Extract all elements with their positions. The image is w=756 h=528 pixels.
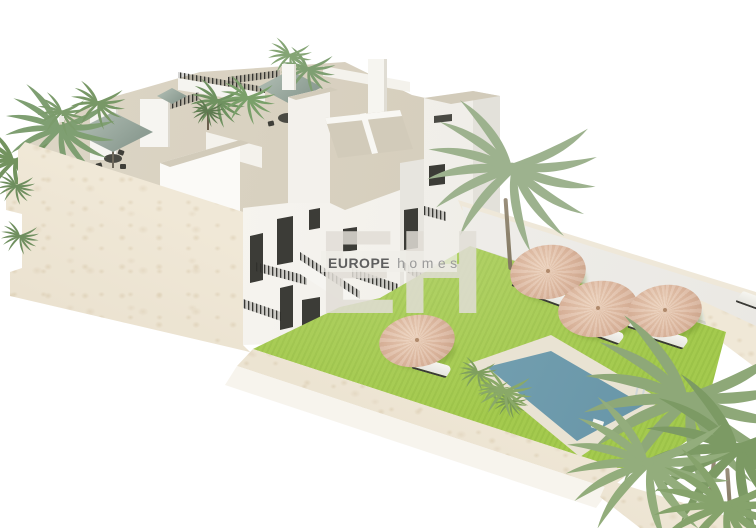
patio-chair bbox=[120, 164, 126, 169]
chimney bbox=[282, 64, 296, 90]
render-canvas: EH EUROPE homes bbox=[0, 0, 756, 528]
palm-tree bbox=[647, 434, 756, 528]
umbrella-tip bbox=[546, 269, 550, 273]
planter-plant bbox=[0, 217, 41, 243]
chimney bbox=[368, 59, 387, 115]
plant bbox=[68, 75, 128, 113]
brand-suffix: homes bbox=[397, 255, 462, 271]
plant-pot bbox=[59, 116, 64, 122]
terrace-wall bbox=[140, 99, 170, 147]
watermark-monogram: EH bbox=[318, 230, 488, 326]
watermark-brand: EUROPE homes bbox=[328, 255, 462, 271]
brand-name: EUROPE bbox=[328, 255, 390, 271]
plant bbox=[190, 94, 226, 117]
plant bbox=[266, 33, 314, 63]
palm-tree bbox=[419, 83, 605, 199]
small-palm bbox=[475, 363, 535, 401]
planter-plant bbox=[0, 167, 37, 193]
plant bbox=[218, 70, 278, 108]
umbrella-pole bbox=[112, 150, 114, 168]
